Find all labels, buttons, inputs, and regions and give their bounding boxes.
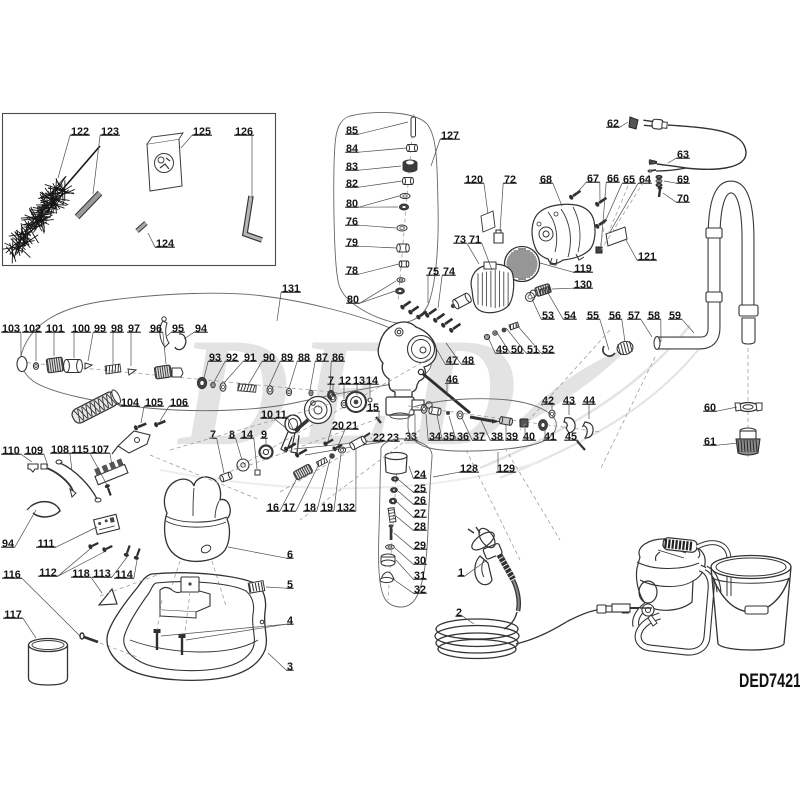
svg-text:30: 30 (414, 555, 426, 567)
svg-text:110: 110 (2, 445, 19, 457)
svg-text:14: 14 (241, 429, 253, 441)
svg-text:28: 28 (414, 521, 426, 533)
svg-text:117: 117 (4, 609, 21, 621)
svg-text:39: 39 (506, 431, 518, 443)
svg-text:25: 25 (414, 483, 426, 495)
svg-text:126: 126 (235, 126, 253, 138)
svg-text:41: 41 (544, 431, 556, 443)
svg-text:58: 58 (648, 310, 660, 322)
svg-text:61: 61 (704, 436, 716, 448)
svg-text:75: 75 (427, 266, 439, 278)
svg-text:123: 123 (101, 126, 119, 138)
svg-text:105: 105 (145, 397, 163, 409)
svg-text:53: 53 (542, 310, 554, 322)
svg-text:20: 20 (332, 420, 344, 432)
svg-text:37: 37 (473, 431, 485, 443)
svg-text:63: 63 (677, 149, 689, 161)
svg-text:107: 107 (91, 444, 109, 456)
svg-text:112: 112 (39, 567, 56, 579)
svg-text:69: 69 (677, 174, 689, 186)
svg-text:129: 129 (497, 463, 515, 475)
svg-text:93: 93 (209, 352, 221, 364)
svg-text:65: 65 (623, 174, 635, 186)
svg-text:19: 19 (321, 502, 333, 514)
svg-text:89: 89 (281, 352, 293, 364)
svg-text:3: 3 (287, 661, 293, 673)
svg-text:91: 91 (244, 352, 256, 364)
svg-text:13: 13 (353, 375, 365, 387)
svg-text:54: 54 (564, 310, 576, 322)
svg-text:57: 57 (628, 310, 640, 322)
svg-text:1: 1 (458, 567, 464, 579)
svg-text:23: 23 (387, 432, 399, 444)
svg-text:83: 83 (346, 161, 358, 173)
svg-text:48: 48 (462, 355, 474, 367)
svg-text:15: 15 (367, 402, 379, 414)
svg-text:38: 38 (491, 431, 503, 443)
svg-text:5: 5 (287, 579, 293, 591)
svg-text:121: 121 (638, 251, 656, 263)
svg-text:26: 26 (414, 495, 426, 507)
svg-text:116: 116 (3, 569, 20, 581)
svg-text:132: 132 (337, 502, 355, 514)
svg-text:76: 76 (346, 216, 358, 228)
svg-text:45: 45 (565, 431, 577, 443)
svg-text:14: 14 (366, 375, 378, 387)
svg-text:100: 100 (72, 323, 90, 335)
svg-text:36: 36 (457, 431, 469, 443)
svg-text:49: 49 (496, 344, 508, 356)
svg-text:108: 108 (51, 444, 69, 456)
svg-text:10: 10 (261, 409, 273, 421)
svg-text:88: 88 (298, 352, 310, 364)
svg-text:17: 17 (283, 502, 295, 514)
svg-text:46: 46 (446, 374, 458, 386)
svg-text:50: 50 (511, 344, 523, 356)
svg-text:127: 127 (441, 130, 459, 142)
svg-text:86: 86 (332, 352, 344, 364)
svg-text:78: 78 (346, 265, 358, 277)
svg-text:79: 79 (346, 237, 358, 249)
svg-text:66: 66 (607, 173, 619, 185)
svg-text:82: 82 (346, 178, 358, 190)
svg-text:72: 72 (504, 174, 516, 186)
svg-text:8: 8 (229, 429, 235, 441)
svg-text:128: 128 (460, 463, 478, 475)
svg-text:87: 87 (316, 352, 328, 364)
svg-text:16: 16 (267, 502, 279, 514)
svg-text:34: 34 (429, 431, 441, 443)
svg-text:120: 120 (465, 174, 483, 186)
svg-text:71: 71 (469, 234, 481, 246)
svg-text:104: 104 (121, 397, 139, 409)
svg-text:21: 21 (346, 420, 358, 432)
svg-text:103: 103 (2, 323, 20, 335)
svg-text:31: 31 (414, 570, 426, 582)
svg-text:29: 29 (414, 540, 426, 552)
svg-text:109: 109 (25, 445, 43, 457)
svg-text:24: 24 (414, 469, 426, 481)
svg-text:DED7421: DED7421 (739, 670, 800, 692)
svg-text:11: 11 (275, 409, 286, 421)
svg-text:115: 115 (71, 444, 88, 456)
svg-text:122: 122 (71, 126, 89, 138)
svg-text:70: 70 (677, 193, 689, 205)
svg-text:113: 113 (93, 568, 110, 580)
svg-text:62: 62 (607, 118, 619, 130)
svg-text:131: 131 (282, 283, 300, 295)
svg-text:130: 130 (574, 279, 592, 291)
svg-text:35: 35 (443, 431, 455, 443)
svg-text:6: 6 (287, 549, 293, 561)
svg-text:80: 80 (346, 198, 358, 210)
svg-text:12: 12 (339, 375, 351, 387)
svg-text:64: 64 (639, 174, 651, 186)
svg-text:119: 119 (574, 263, 591, 275)
svg-text:51: 51 (527, 344, 539, 356)
svg-text:68: 68 (540, 174, 552, 186)
svg-text:97: 97 (128, 323, 140, 335)
svg-text:95: 95 (172, 323, 184, 335)
svg-text:111: 111 (38, 538, 55, 550)
svg-text:18: 18 (304, 502, 316, 514)
svg-text:94: 94 (195, 323, 207, 335)
svg-text:92: 92 (226, 352, 238, 364)
svg-text:32: 32 (414, 584, 426, 596)
svg-text:114: 114 (115, 569, 132, 581)
svg-text:80: 80 (347, 294, 359, 306)
svg-text:56: 56 (609, 310, 621, 322)
svg-text:101: 101 (46, 323, 64, 335)
svg-text:47: 47 (446, 355, 458, 367)
svg-text:85: 85 (346, 125, 358, 137)
svg-text:7: 7 (210, 429, 216, 441)
svg-text:94: 94 (2, 538, 14, 550)
svg-text:52: 52 (542, 344, 554, 356)
svg-text:118: 118 (72, 568, 89, 580)
svg-text:90: 90 (263, 352, 275, 364)
svg-text:102: 102 (23, 323, 41, 335)
svg-text:55: 55 (587, 310, 599, 322)
svg-text:27: 27 (414, 508, 426, 520)
svg-text:60: 60 (704, 402, 716, 414)
svg-text:124: 124 (156, 238, 174, 250)
svg-text:106: 106 (170, 397, 188, 409)
svg-text:99: 99 (94, 323, 106, 335)
svg-text:74: 74 (443, 266, 455, 278)
svg-text:73: 73 (454, 234, 466, 246)
svg-text:4: 4 (287, 615, 293, 627)
svg-text:2: 2 (456, 607, 462, 619)
svg-text:96: 96 (150, 323, 162, 335)
svg-text:125: 125 (193, 126, 211, 138)
svg-text:67: 67 (587, 173, 599, 185)
svg-text:84: 84 (346, 143, 358, 155)
svg-text:59: 59 (669, 310, 681, 322)
